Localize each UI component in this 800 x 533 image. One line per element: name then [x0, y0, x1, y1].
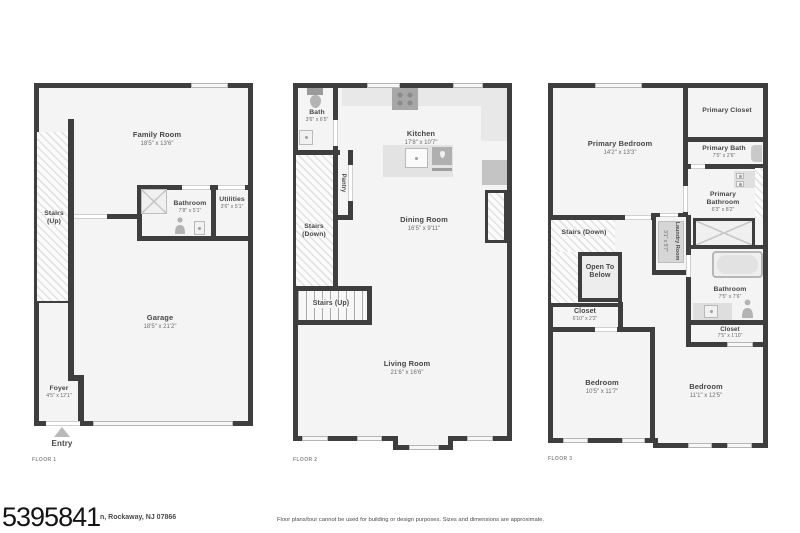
- wall: [37, 301, 68, 303]
- floor-1-label: FLOOR 1: [32, 457, 56, 463]
- room-bath: Bath 3'6" x 6'5": [306, 109, 329, 124]
- window: [563, 438, 588, 443]
- sink-icon: [704, 305, 718, 318]
- room-primary-bath: Primary Bath 7'5" x 2'6": [702, 145, 746, 160]
- door-opening: [182, 185, 210, 190]
- door-opening: [333, 120, 338, 146]
- dishwasher-slot: [432, 168, 452, 171]
- sink-icon: [194, 221, 205, 235]
- window: [409, 445, 439, 450]
- wall: [367, 286, 372, 325]
- window: [191, 83, 228, 88]
- room-stairs-up: Stairs (Up): [44, 210, 64, 226]
- room-closet-right: Closet 7'5" x 1'10": [718, 326, 743, 340]
- door-opening: [683, 186, 688, 212]
- wall: [507, 83, 512, 441]
- wall: [107, 214, 137, 219]
- door-opening: [691, 164, 705, 169]
- room-foyer: Foyer 4'5" x 12'1": [46, 385, 72, 400]
- fireplace: [485, 190, 507, 243]
- floor-plan-2: Bath 3'6" x 6'5" Pantry Stairs (Down) St…: [293, 83, 512, 450]
- window: [357, 436, 382, 441]
- sink-icon: [736, 173, 744, 179]
- door-opening: [74, 214, 107, 219]
- stairs-hatch: [296, 155, 333, 286]
- room-kitchen: Kitchen 17'8" x 10'7": [405, 130, 438, 147]
- wall: [211, 185, 216, 241]
- wall: [548, 83, 768, 88]
- refrigerator-icon: [482, 160, 507, 185]
- room-utilities: Utilities 3'6" x 5'1": [219, 196, 244, 211]
- room-dining: Dining Room 16'5" x 9'11": [400, 216, 448, 233]
- window: [727, 443, 752, 448]
- wall: [686, 320, 768, 325]
- watermark-id: 5395841: [2, 502, 100, 533]
- stairs-hatch: [551, 252, 578, 303]
- window: [595, 83, 642, 88]
- room-closet-left: Closet 6'10" x 2'2": [573, 308, 598, 323]
- room-primary-bedroom: Primary Bedroom 14'2" x 13'3": [588, 140, 652, 157]
- person-icon: [741, 299, 754, 318]
- door-opening: [625, 215, 651, 220]
- sink-icon: [299, 130, 313, 145]
- shower-icon: [141, 189, 167, 214]
- disclaimer-text: Floor plans/tour cannot be used for buil…: [277, 517, 544, 523]
- room-family-room: Family Room 18'5" x 13'6": [133, 131, 181, 148]
- room-bedroom-left: Bedroom 10'5" x 11'7": [585, 379, 619, 396]
- entry-door-opening: [46, 421, 80, 426]
- wall: [137, 236, 248, 241]
- sink-icon: [751, 145, 762, 162]
- window: [688, 443, 712, 448]
- wall: [686, 215, 691, 346]
- door-opening: [218, 185, 245, 190]
- floor-2-label: FLOOR 2: [293, 457, 317, 463]
- wall: [650, 328, 655, 443]
- address-text: n, Rockaway, NJ 07866: [100, 514, 176, 521]
- island-sink-icon: [405, 148, 428, 168]
- sink-icon: [736, 181, 744, 187]
- door-opening: [660, 213, 678, 217]
- toilet-icon: [307, 88, 323, 95]
- door-opening: [348, 165, 353, 201]
- entry-label: Entry: [52, 439, 73, 448]
- wall: [248, 83, 253, 426]
- door-opening: [727, 342, 753, 347]
- room-living: Living Room 21'6" x 16'6": [384, 360, 431, 377]
- shower-icon: [693, 218, 755, 248]
- wall: [333, 83, 338, 286]
- floor-plan-page: { "meta": { "watermark_id": "5395841", "…: [0, 0, 800, 533]
- room-laundry: Laundry Room: [674, 222, 680, 261]
- wall: [688, 137, 768, 142]
- wall: [652, 270, 690, 275]
- garage-door: [93, 421, 233, 426]
- floor-plan-3: Primary Bedroom 14'2" x 13'3" Primary Cl…: [548, 83, 768, 448]
- window: [622, 438, 645, 443]
- wall: [333, 215, 353, 220]
- room-garage: Garage 18'5" x 21'2": [144, 314, 177, 331]
- room-laundry-dims: 3'1" x 5'7": [662, 230, 668, 252]
- room-primary-bathroom: Primary Bathroom 6'3" x 8'2": [707, 191, 740, 214]
- stove-icon: [392, 88, 418, 110]
- room-stairs-up: Stairs (Up): [311, 300, 352, 308]
- floor-3-label: FLOOR 3: [548, 456, 572, 462]
- wall: [688, 245, 768, 249]
- door-opening: [595, 327, 617, 332]
- room-pantry: Pantry: [340, 174, 346, 193]
- wall: [548, 303, 622, 307]
- open-to-below-label: Open To Below: [586, 264, 615, 280]
- wall: [293, 320, 372, 325]
- floor-plan-1: Family Room 18'5" x 13'6" Stairs (Up) Ba…: [34, 83, 253, 426]
- wall: [78, 381, 84, 421]
- room-bedroom-right: Bedroom 11'1" x 12'5": [689, 383, 723, 400]
- window: [302, 436, 328, 441]
- wall: [68, 119, 74, 381]
- window: [467, 436, 493, 441]
- room-bathroom: Bathroom 7'8" x 5'1": [174, 200, 207, 215]
- kitchen-counter: [481, 88, 507, 141]
- room-stairs-down: Stairs (Down): [302, 223, 326, 239]
- bathtub-icon: [712, 251, 763, 278]
- person-icon: [174, 217, 186, 234]
- wall: [652, 213, 656, 275]
- room-primary-closet: Primary Closet: [702, 107, 751, 115]
- door-opening: [686, 255, 691, 277]
- room-stairs-down: Stairs (Down): [561, 229, 606, 237]
- wall-hatch: [755, 168, 763, 218]
- entry-arrow-icon: [54, 427, 70, 437]
